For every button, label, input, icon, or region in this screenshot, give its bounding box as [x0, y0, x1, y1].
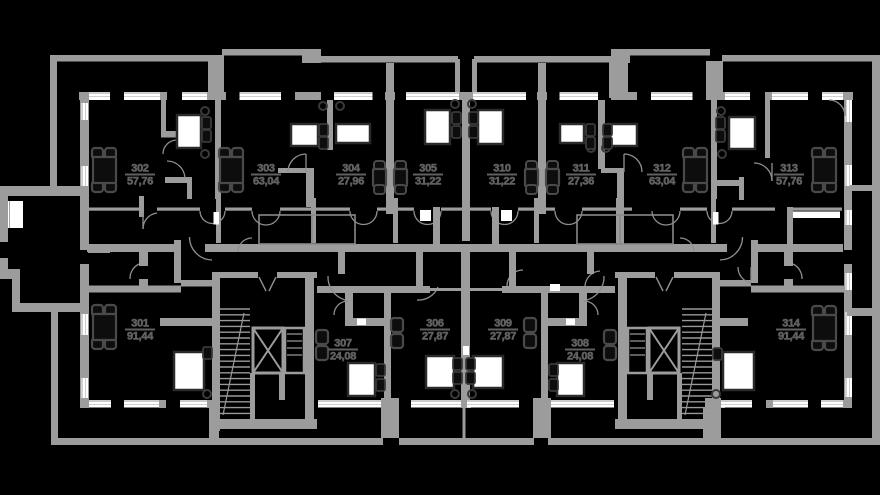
svg-text:57,76: 57,76 [127, 176, 153, 188]
svg-text:308: 308 [571, 338, 589, 350]
svg-text:27,87: 27,87 [490, 331, 516, 343]
svg-text:307: 307 [334, 338, 352, 350]
svg-text:313: 313 [780, 163, 798, 175]
svg-text:91,44: 91,44 [778, 331, 805, 343]
svg-text:63,04: 63,04 [253, 176, 280, 188]
svg-text:309: 309 [494, 318, 512, 330]
svg-text:31,22: 31,22 [415, 176, 441, 188]
svg-text:31,22: 31,22 [489, 176, 515, 188]
svg-text:63,04: 63,04 [649, 176, 676, 188]
svg-text:24,08: 24,08 [567, 351, 593, 363]
svg-text:305: 305 [419, 163, 437, 175]
svg-text:27,96: 27,96 [338, 176, 364, 188]
svg-text:310: 310 [493, 163, 511, 175]
svg-text:91,44: 91,44 [127, 331, 154, 343]
svg-text:302: 302 [131, 163, 149, 175]
svg-text:306: 306 [426, 318, 444, 330]
svg-text:303: 303 [257, 163, 275, 175]
svg-text:304: 304 [342, 163, 361, 175]
svg-text:24,08: 24,08 [330, 351, 356, 363]
svg-text:57,76: 57,76 [776, 176, 802, 188]
svg-text:27,87: 27,87 [422, 331, 448, 343]
svg-text:312: 312 [653, 163, 671, 175]
svg-text:314: 314 [782, 318, 801, 330]
svg-text:311: 311 [573, 163, 590, 175]
svg-text:27,36: 27,36 [568, 176, 594, 188]
svg-text:301: 301 [131, 318, 149, 330]
